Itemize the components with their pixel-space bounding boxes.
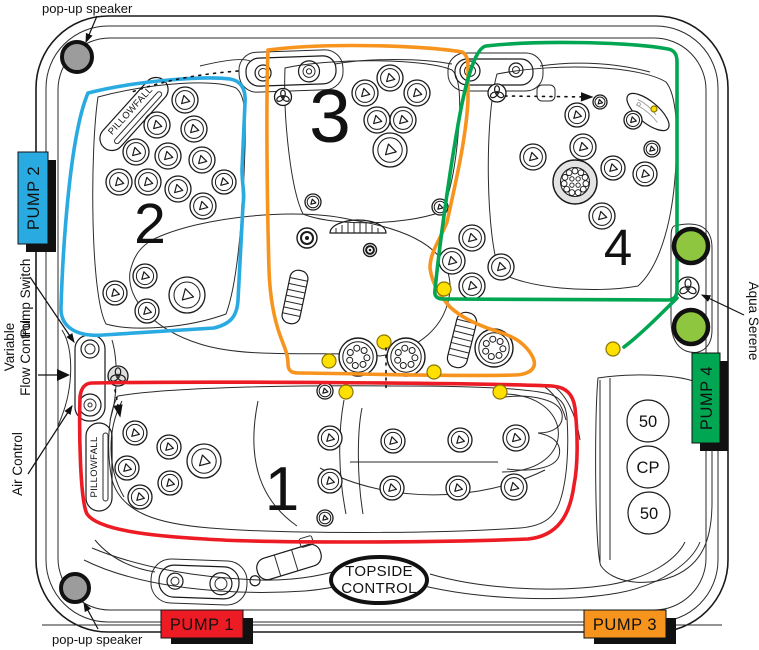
zone3-number: 3 [309, 74, 351, 158]
pump1-text: PUMP 1 [170, 616, 234, 634]
tri-lobe-jet [275, 89, 292, 106]
tri-lobe-jet [677, 277, 699, 299]
jet [305, 194, 321, 210]
bottom-control-panel [150, 558, 247, 605]
jet [352, 80, 378, 106]
jet [106, 169, 132, 195]
jet [404, 80, 430, 106]
jet [633, 162, 657, 186]
jet [520, 144, 546, 170]
jet [601, 156, 625, 180]
filter-cap-top-label: 50 [639, 413, 657, 431]
channel-line-1 [92, 548, 352, 580]
pump3-text: PUMP 3 [593, 616, 657, 634]
multi-hole-jet [339, 338, 377, 376]
flow-control-label: Flow Control [18, 320, 33, 396]
filter-cap-bottom-label: 50 [640, 505, 658, 523]
jet [364, 107, 390, 133]
jet [172, 87, 198, 113]
pillowfall-lower: PILLOWFALL [86, 423, 112, 511]
jet [448, 428, 472, 452]
lounger-divider-right [358, 408, 363, 514]
dotted-link-zone4 [505, 96, 592, 97]
ribbed-body [446, 310, 479, 369]
pump2-label: PUMP 2 [18, 152, 56, 252]
jet [187, 444, 221, 478]
jet [123, 139, 149, 165]
jet [381, 429, 405, 453]
molding-block [537, 85, 555, 101]
aqua-serene-label: Aqua Serene [746, 282, 759, 361]
filter-caps: 50 CP 50 [627, 400, 670, 534]
air-control-arrow [28, 406, 72, 474]
tri-lobe-jet [488, 84, 506, 102]
filter-cap-middle-label: CP [637, 459, 660, 477]
zone1-number: 1 [265, 455, 299, 524]
popup-speaker [62, 42, 92, 72]
air-control-dial-center [88, 403, 92, 407]
hot-tub-jet-zone-diagram: PILLOWFALL PILLOWFALL 2 3 4 1 50 C [0, 0, 759, 650]
diverter-dial-inner [215, 578, 227, 590]
jet [317, 383, 333, 399]
jet [123, 421, 147, 445]
spa-light-green [674, 310, 708, 344]
jet [488, 254, 514, 280]
spa-light-green [674, 229, 708, 263]
pillowfall-slot [103, 433, 108, 501]
jet [503, 425, 529, 451]
jet [181, 116, 207, 142]
lounger-divider-left [340, 400, 346, 514]
air-control-dial [79, 394, 101, 416]
jet [439, 248, 465, 274]
pump4-text: PUMP 4 [698, 366, 716, 430]
popup-speaker-bottom-label: pop-up speaker [52, 632, 143, 647]
jet [190, 193, 216, 219]
pump-switch-knob [81, 340, 99, 358]
jet [570, 134, 596, 160]
led-light-yellow [651, 106, 657, 112]
pump2-text: PUMP 2 [25, 166, 43, 230]
led-light-yellow [322, 354, 336, 368]
air-control-label: Air Control [10, 432, 25, 496]
jet [158, 471, 182, 495]
jet [644, 141, 660, 157]
zone2-number: 2 [134, 192, 166, 256]
top-molding-wave-2 [200, 60, 250, 66]
top-molding-wave-1 [335, 60, 452, 65]
variable-label: Variable [2, 323, 17, 372]
jet [103, 281, 127, 305]
jet [390, 107, 416, 133]
jet [459, 225, 485, 251]
jet [501, 474, 527, 500]
aqua-serene-arrow [702, 295, 744, 315]
jet [133, 264, 157, 288]
led-light-yellow [427, 365, 441, 379]
therapy-jet [553, 160, 597, 204]
pump4-label: PUMP 4 [692, 353, 728, 451]
channel-line-4 [424, 542, 700, 599]
jet [155, 143, 181, 169]
jet [446, 476, 470, 500]
jet [565, 103, 589, 127]
air-control-knob-inner [513, 67, 520, 74]
led-light-yellow [437, 282, 451, 296]
jet [115, 456, 139, 480]
flow-control-arrowhead [57, 369, 70, 381]
suction-fitting [364, 244, 377, 257]
air-control-knob [167, 573, 184, 590]
pump1-label: PUMP 1 [161, 610, 253, 644]
zone4-number: 4 [604, 219, 632, 276]
channel-line-5 [95, 540, 155, 572]
jet [189, 147, 215, 173]
air-control-knob-inner [171, 577, 179, 585]
pump3-label: PUMP 3 [584, 610, 676, 644]
zone4-tail [624, 298, 677, 347]
valve-seam-2 [292, 550, 298, 571]
air-control-dial-inner [84, 399, 96, 411]
jet [318, 469, 342, 493]
jet [373, 133, 407, 167]
jet [128, 485, 152, 509]
jet [459, 273, 485, 299]
popup-speaker [61, 574, 89, 602]
popup-speaker-top-label: pop-up speaker [42, 1, 133, 16]
jet [135, 299, 159, 323]
led-light-yellow [339, 385, 353, 399]
pump-switch-knob-inner [85, 344, 95, 354]
ribbed-intake-right [446, 310, 479, 369]
topside-label-line2: CONTROL [341, 580, 416, 597]
jet [317, 510, 333, 526]
topside-label-line1: TOPSIDE [345, 563, 413, 580]
jet [593, 95, 607, 109]
led-light-yellow [606, 342, 620, 356]
ribbed-intake-left [281, 269, 310, 326]
jet [380, 476, 404, 500]
topside-control: TOPSIDE CONTROL [331, 557, 427, 603]
jet [377, 65, 403, 91]
multi-hole-jet [387, 338, 425, 376]
badge-dot [637, 102, 642, 107]
diverter-dial [210, 572, 233, 595]
jet [169, 277, 205, 313]
led-light-yellow [377, 335, 391, 349]
jet [624, 111, 642, 129]
jet [165, 176, 191, 202]
jet [212, 170, 236, 194]
valve-seam-1 [274, 555, 280, 576]
led-light-yellow [493, 385, 507, 399]
suction-fitting [297, 228, 317, 248]
diagram-canvas: PILLOWFALL PILLOWFALL 2 3 4 1 50 C [0, 0, 759, 650]
jet [318, 426, 342, 450]
jet [157, 435, 181, 459]
lounger-outline [109, 386, 568, 533]
pillowfall-lower-label: PILLOWFALL [89, 436, 100, 497]
